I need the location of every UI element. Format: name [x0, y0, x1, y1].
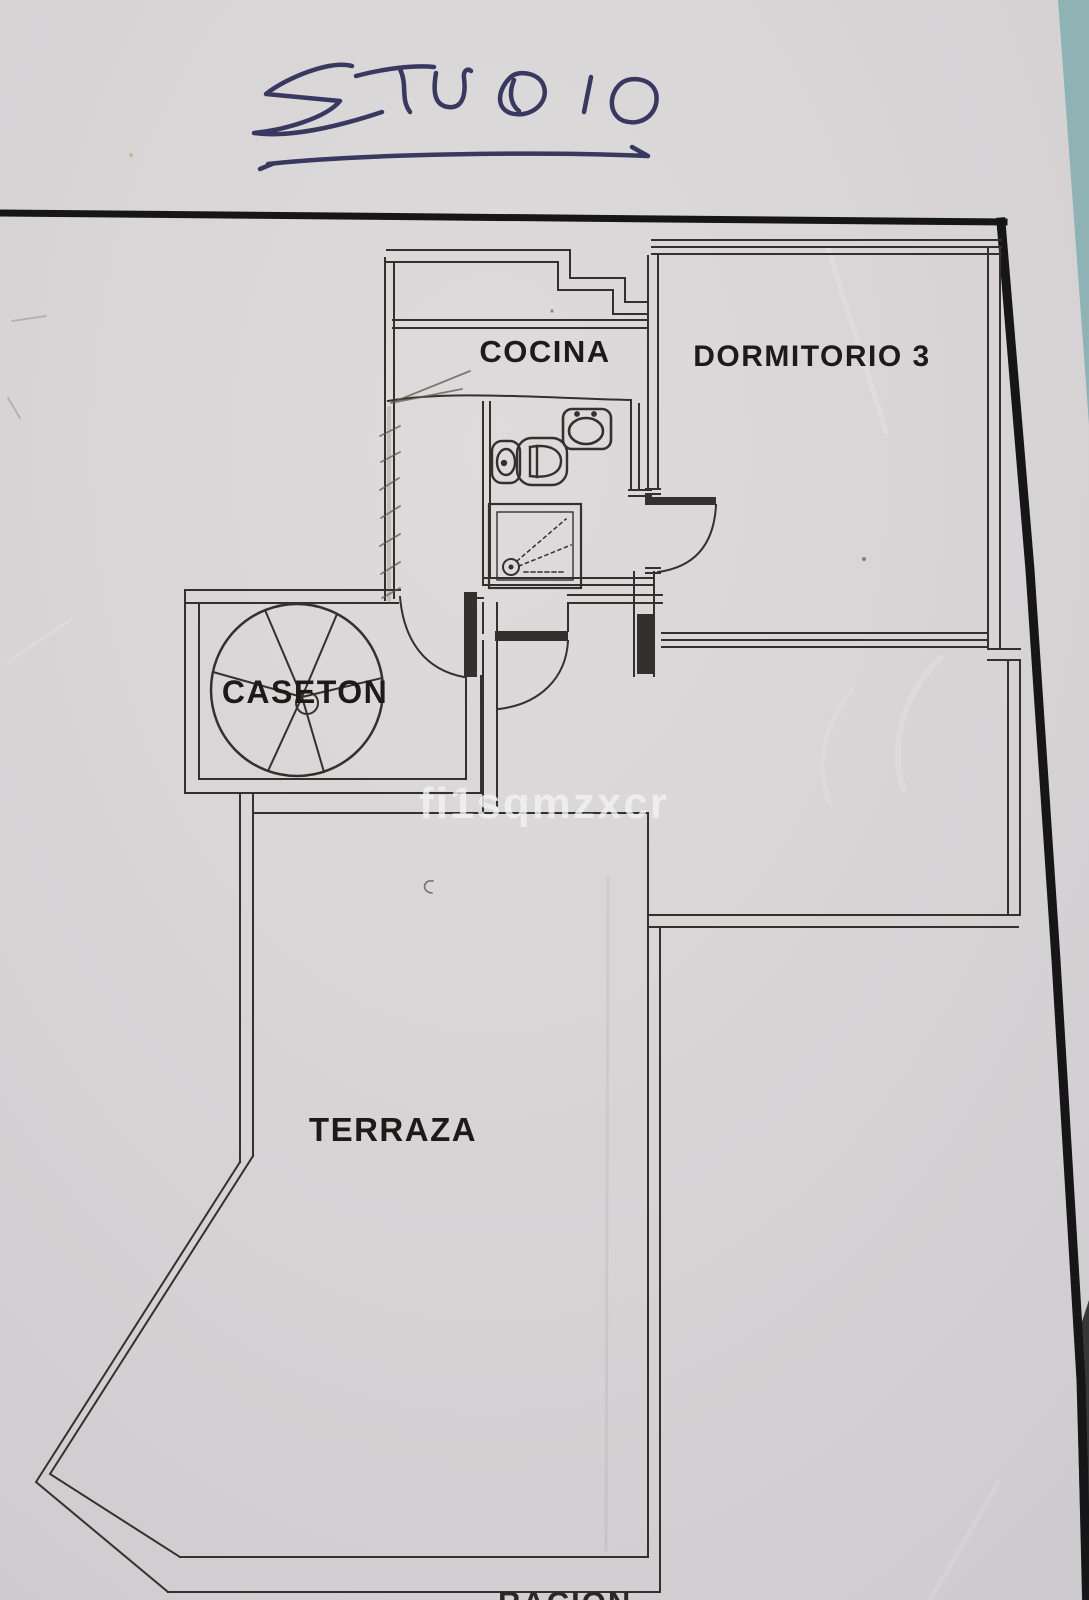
room-label-terraza: TERRAZA — [309, 1111, 477, 1148]
door-leaf-hall — [495, 631, 568, 641]
room-label-caseton: CASETON — [222, 674, 388, 710]
door-leaf-dormitorio — [645, 497, 716, 505]
cut-off-bottom-label: RACION — [498, 1585, 632, 1600]
watermark-text: fi1sqmzxcr — [419, 779, 669, 828]
scanned-floor-plan-photo: STUDIO — [0, 0, 1089, 1600]
room-label-dormitorio-3: DORMITORIO 3 — [693, 340, 930, 373]
door-leaf-caseton — [464, 592, 477, 677]
room-label-cocina: COCINA — [479, 334, 610, 369]
